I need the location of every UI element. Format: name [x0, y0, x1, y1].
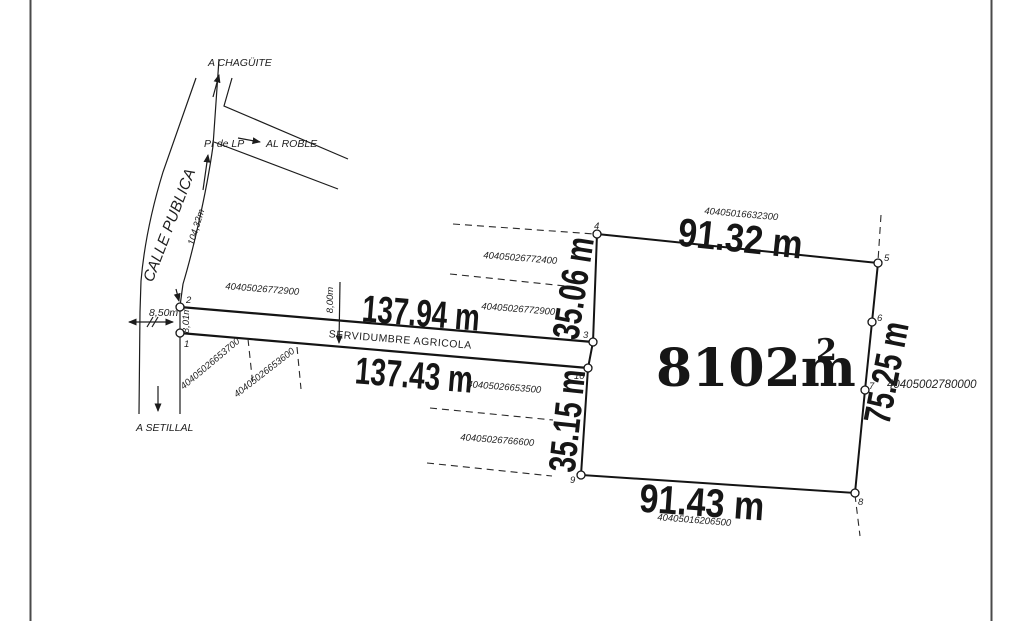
pi-de-lp-arrow — [203, 155, 208, 190]
point2-tick-arrow — [176, 289, 179, 301]
dashed-extension-west-of-p4 — [453, 224, 595, 234]
cadastral-west-lower: 40405026766600 — [460, 432, 535, 449]
cadastral-diag-b: 40405026653600 — [232, 345, 298, 400]
cadastral-west-upper-2: 40405026772900 — [481, 301, 556, 318]
parcel-area-superscript: 2 — [816, 333, 837, 368]
vertex-label-9: 9 — [570, 475, 576, 486]
vertex-label-1: 1 — [184, 339, 189, 350]
dim-east: 75.25 m — [857, 318, 918, 427]
strip-width-mid-label: 8,00m — [325, 287, 336, 313]
north-destination-label: A CHAGÜITE — [207, 57, 273, 69]
south-destination-label: A SETILLAL — [135, 422, 194, 434]
cadastral-east: 40405002780000 — [887, 379, 977, 391]
survey-drawing: 1 2 3 4 5 6 7 8 9 10 137.94 m 137.43 m 9… — [0, 0, 1024, 621]
vertex-label-4: 4 — [594, 221, 599, 232]
north-direction-arrow — [213, 75, 219, 97]
dashed-boundary-west-lower-2 — [427, 463, 552, 476]
vertex-5 — [874, 259, 882, 267]
cadastral-strip-north: 40405026772900 — [225, 281, 300, 298]
cadastral-strip-south: 40405026653500 — [467, 379, 542, 396]
pi-marker-label: PI de LP — [204, 138, 244, 150]
vertex-8 — [851, 489, 859, 497]
dim-west-lower: 35.15 m — [542, 367, 595, 474]
road-length-label: 104,32m — [186, 208, 207, 247]
east-destination-label: AL ROBLE — [265, 138, 318, 150]
cadastral-west-upper-1: 40405026772400 — [483, 250, 558, 267]
dashed-boundary-strip-south-2 — [297, 347, 301, 389]
vertex-3 — [589, 338, 597, 346]
survey-plat-page: 1 2 3 4 5 6 7 8 9 10 137.94 m 137.43 m 9… — [0, 0, 1024, 621]
vertex-label-5: 5 — [884, 253, 890, 264]
strip-width-west-label: 8,01m — [181, 307, 192, 333]
dim-strip-bottom: 137.43 m — [353, 350, 474, 401]
vertex-label-8: 8 — [858, 497, 864, 508]
road-width-label: 8,50m — [149, 307, 178, 319]
dashed-extension-north-of-p5 — [878, 215, 881, 261]
vertex-label-2: 2 — [185, 295, 192, 306]
dashed-boundary-west-lower-1 — [430, 408, 553, 420]
